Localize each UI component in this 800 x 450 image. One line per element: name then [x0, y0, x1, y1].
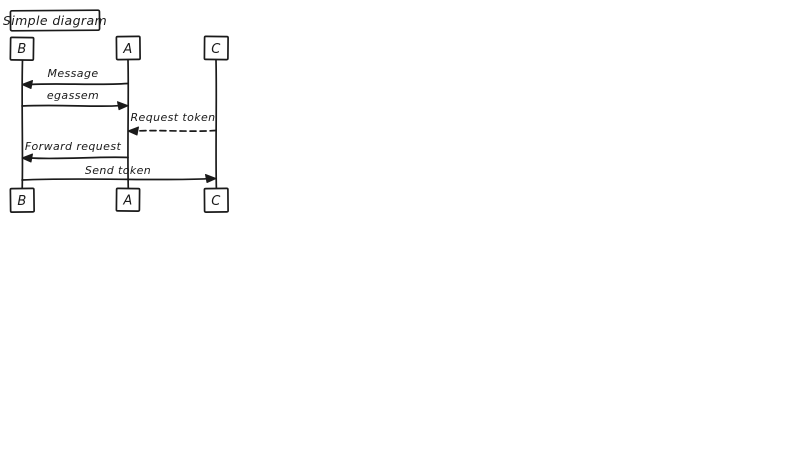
- message-2: egassem: [22, 89, 128, 110]
- message-5: Send token: [22, 164, 216, 183]
- actors-bottom: B A C: [10, 188, 228, 212]
- message-2-line: [22, 105, 120, 106]
- actor-top-B: B: [10, 37, 33, 60]
- actor-top-C-label: C: [211, 42, 221, 57]
- actor-bottom-C: C: [204, 188, 228, 212]
- message-4: Forward request: [22, 140, 128, 162]
- diagram-title: Simple diagram: [3, 10, 107, 31]
- message-5-line: [22, 179, 208, 180]
- message-3-line: [136, 131, 216, 132]
- message-1-label: Message: [47, 67, 98, 80]
- actor-bottom-B-label: B: [17, 194, 26, 209]
- actor-top-A-label: A: [122, 42, 132, 57]
- message-4-label: Forward request: [25, 140, 122, 153]
- diagram-title-text: Simple diagram: [3, 13, 107, 28]
- message-2-arrowhead-right: [118, 102, 129, 110]
- actor-top-B-label: B: [17, 42, 26, 57]
- actors-top: B A C: [10, 36, 228, 60]
- actor-bottom-A: A: [116, 188, 139, 211]
- message-5-arrowhead-right: [206, 175, 217, 183]
- message-1-line: [30, 84, 128, 85]
- message-1: Message: [22, 67, 128, 89]
- message-4-line: [30, 157, 128, 158]
- sequence-diagram: Simple diagram B A C Message: [0, 0, 800, 450]
- page-canvas: Simple diagram B A C Message: [0, 0, 800, 450]
- message-4-arrowhead-left: [22, 154, 33, 162]
- actor-bottom-C-label: C: [211, 194, 221, 209]
- message-2-label: egassem: [47, 89, 99, 102]
- message-5-label: Send token: [85, 164, 151, 177]
- actor-top-A: A: [116, 36, 140, 59]
- message-3-label: Request token: [130, 111, 215, 124]
- actor-top-C: C: [204, 36, 228, 59]
- message-3: Request token: [128, 111, 216, 135]
- actor-bottom-A-label: A: [122, 194, 132, 209]
- message-1-arrowhead-left: [22, 81, 33, 89]
- actor-bottom-B: B: [10, 188, 34, 212]
- message-3-arrowhead-left: [128, 127, 139, 135]
